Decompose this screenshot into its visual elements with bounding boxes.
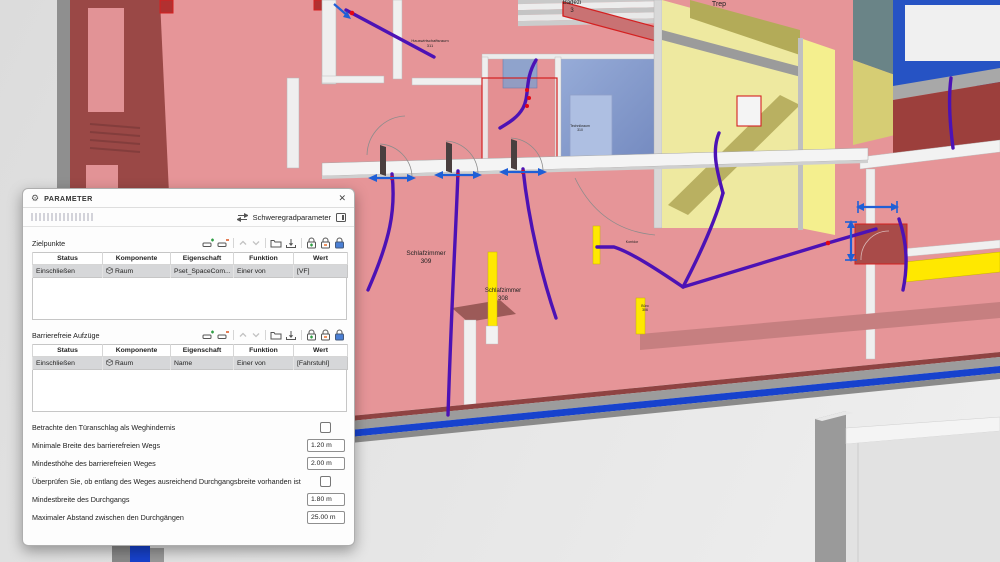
highlighted-wall	[488, 252, 497, 328]
close-icon[interactable]: ✕	[338, 194, 346, 203]
move-down-icon[interactable]	[251, 238, 261, 248]
gear-icon: ⚙	[31, 194, 39, 203]
durchgangsbreite-checkbox[interactable]	[320, 476, 331, 487]
option-label-max-abstand: Maximaler Abstand zwischen den Durchgäng…	[32, 513, 307, 522]
add-row-icon[interactable]	[202, 329, 214, 341]
max-abstand-input[interactable]	[307, 511, 345, 524]
zielpunkte-table[interactable]: Status Komponente Eigenschaft Funktion W…	[32, 252, 348, 278]
col-wert[interactable]: Wert	[294, 253, 348, 265]
col-funktion[interactable]: Funktion	[234, 253, 294, 265]
lock-icon[interactable]	[334, 329, 345, 341]
move-up-icon[interactable]	[238, 330, 248, 340]
unlock-icon[interactable]	[320, 237, 331, 249]
option-label-min-hoehe-weg: Mindesthöhe des barrierefreien Weges	[32, 459, 307, 468]
tueranschlag-checkbox[interactable]	[320, 422, 331, 433]
option-label-tueranschlag: Betrachte den Türanschlag als Weghindern…	[32, 423, 320, 432]
table-empty-area[interactable]	[32, 278, 347, 320]
component-cube-icon	[106, 359, 113, 366]
min-breite-durchgang-input[interactable]	[307, 493, 345, 506]
aufzuege-table[interactable]: Status Komponente Eigenschaft Funktion W…	[32, 344, 348, 370]
section-label-zielpunkte: Zielpunkte	[32, 239, 202, 248]
option-label-min-breite-durchgang: Mindestbreite des Durchgangs	[32, 495, 307, 504]
drag-hatch-pattern	[31, 213, 93, 221]
parameter-mode-label[interactable]: Schweregradparameter	[253, 213, 331, 222]
selection-outline	[482, 78, 557, 163]
dialog-titlebar[interactable]: ⚙ PARAMETER ✕	[23, 189, 354, 208]
open-folder-icon[interactable]	[270, 238, 282, 249]
col-eigenschaft[interactable]: Eigenschaft	[171, 345, 234, 357]
import-icon[interactable]	[285, 238, 297, 249]
import-icon[interactable]	[285, 330, 297, 341]
open-folder-icon[interactable]	[270, 330, 282, 341]
col-status[interactable]: Status	[33, 253, 103, 265]
section-toolbar	[202, 329, 345, 341]
col-wert[interactable]: Wert	[294, 345, 348, 357]
dialog-title: PARAMETER	[44, 194, 333, 203]
swap-arrows-icon	[237, 213, 248, 222]
col-komponente[interactable]: Komponente	[103, 345, 171, 357]
col-eigenschaft[interactable]: Eigenschaft	[171, 253, 234, 265]
move-down-icon[interactable]	[251, 330, 261, 340]
table-row[interactable]: Einschließen Raum Pset_SpaceCom... Einer…	[33, 265, 348, 278]
option-label-durchgangsbreite-pruefen: Überprüfen Sie, ob entlang des Weges aus…	[32, 477, 320, 486]
col-funktion[interactable]: Funktion	[234, 345, 294, 357]
section-toolbar	[202, 237, 345, 249]
remove-row-icon[interactable]	[217, 329, 229, 341]
add-lock-icon[interactable]	[306, 237, 317, 249]
min-hoehe-weg-input[interactable]	[307, 457, 345, 470]
remove-row-icon[interactable]	[217, 237, 229, 249]
component-cube-icon	[106, 267, 113, 274]
option-label-min-breite-weg: Minimale Breite des barrierefreien Wegs	[32, 441, 307, 450]
add-row-icon[interactable]	[202, 237, 214, 249]
add-lock-icon[interactable]	[306, 329, 317, 341]
col-komponente[interactable]: Komponente	[103, 253, 171, 265]
table-empty-area[interactable]	[32, 370, 347, 412]
move-up-icon[interactable]	[238, 238, 248, 248]
panel-toggle-icon[interactable]	[336, 213, 346, 222]
parameter-dialog: ⚙ PARAMETER ✕ Schweregradparameter Zielp…	[22, 188, 355, 546]
lock-icon[interactable]	[334, 237, 345, 249]
min-breite-weg-input[interactable]	[307, 439, 345, 452]
app-canvas: Hauswirtschaftsraum311 Badezi3 Trep Tech…	[0, 0, 1000, 562]
unlock-icon[interactable]	[320, 329, 331, 341]
col-status[interactable]: Status	[33, 345, 103, 357]
table-row[interactable]: Einschließen Raum Name Einer von [Fahrst…	[33, 357, 348, 370]
section-label-aufzuege: Barrierefreie Aufzüge	[32, 331, 202, 340]
